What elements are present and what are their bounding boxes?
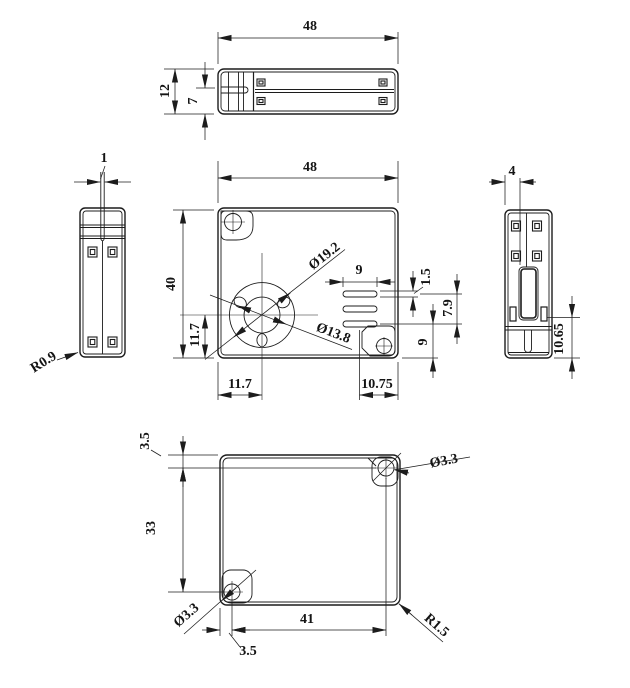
front-view-screw-boss-bottom-right — [362, 326, 395, 356]
dim-left-gap: 1 — [101, 152, 108, 166]
dim-top-width: 48 — [303, 20, 317, 34]
front-view-screw-boss-top-left — [221, 210, 253, 240]
right-view-body — [505, 210, 552, 358]
dim-fan-center-x: 11.7 — [228, 378, 252, 392]
drawing-linework — [0, 0, 630, 688]
dim-bottom-span-h: 41 — [300, 613, 314, 627]
dim-bottom-hole-left: 3.5 — [239, 645, 257, 659]
bottom-view-body — [220, 455, 400, 605]
left-view-body — [80, 172, 125, 357]
dim-vent-span: 7.9 — [442, 299, 456, 317]
dim-top-rail: 7 — [187, 98, 201, 105]
front-view-body — [180, 208, 398, 400]
dim-front-height: 40 — [165, 277, 179, 291]
left-view-dimensions — [57, 166, 131, 360]
dim-top-height: 12 — [159, 84, 173, 98]
dim-fan-center-y: 11.7 — [189, 323, 203, 347]
dim-bottom-hole-top: 3.5 — [139, 432, 153, 450]
dim-right-bottom: 10.65 — [553, 323, 567, 355]
dim-right-depth: 4 — [509, 165, 516, 179]
top-view-dimensions — [164, 32, 398, 140]
top-view-body — [218, 69, 398, 114]
dim-front-width: 48 — [303, 161, 317, 175]
engineering-drawing-canvas: 48 12 7 1 R0.9 48 40 Ø19.2 Ø13.8 9 1.5 7… — [0, 0, 630, 688]
right-view-tab — [525, 330, 532, 352]
dim-vent-slot-height: 1.5 — [420, 268, 434, 286]
vent-slats — [343, 291, 377, 327]
dim-vent-to-bottom: 9 — [417, 339, 431, 346]
dim-bottom-span-v: 33 — [145, 521, 159, 535]
right-view-slot — [519, 267, 538, 320]
dim-vent-width: 9 — [356, 264, 363, 278]
bottom-view-screw-boss-bottom-left — [221, 570, 252, 603]
dim-vent-to-right: 10.75 — [361, 378, 393, 392]
top-view-pin-holes — [257, 79, 387, 105]
